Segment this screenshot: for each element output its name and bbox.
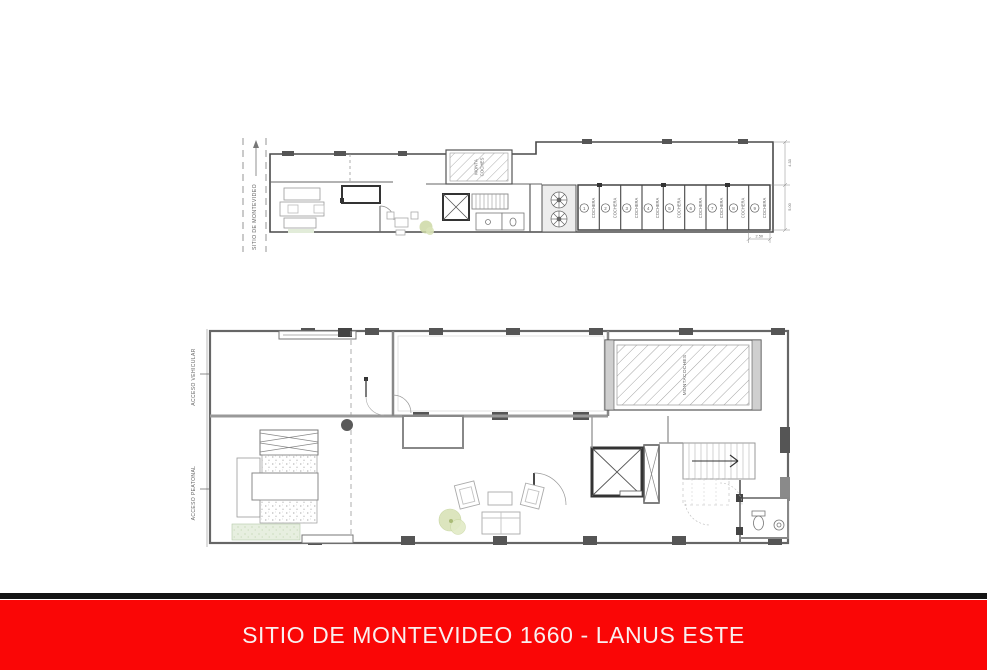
stairs <box>472 194 508 209</box>
service-shaft <box>644 445 659 503</box>
pillar <box>582 139 592 144</box>
toilet <box>510 218 516 226</box>
parking-stalls: 1 COCHERA 2 COCHERA 3 COCHERA 4 COCHERA … <box>578 183 770 230</box>
pillar <box>597 183 602 187</box>
pillar <box>334 151 346 156</box>
stall-label: COCHERA <box>591 198 596 219</box>
stall-label: COCHERA <box>698 198 703 219</box>
elevator-shaft <box>443 194 469 220</box>
street-arrow-icon <box>253 140 259 176</box>
sofa <box>482 512 520 534</box>
pedestrian-access-label: ACCESO PEATONAL <box>191 466 197 521</box>
dim-right-upper: 4.33 <box>787 159 792 167</box>
door-jamb <box>340 198 344 203</box>
stall-label: COCHERA <box>655 198 660 219</box>
coffee-table <box>488 492 512 505</box>
vestibule <box>403 416 463 448</box>
car-lift-label-2: COCHES <box>480 158 485 177</box>
textured-path <box>262 455 317 473</box>
bathroom <box>476 213 524 230</box>
car-lift-label: MONTACOCHES <box>682 355 688 396</box>
pedestrian-gate <box>302 535 353 543</box>
grass-texture <box>232 524 300 540</box>
title-banner: SITIO DE MONTEVIDEO 1660 - LANUS ESTE <box>0 600 987 670</box>
mechanical-stall <box>542 185 576 232</box>
elevator-shaft <box>592 448 642 496</box>
pillar <box>662 139 672 144</box>
pillar <box>725 183 730 187</box>
upper-floor-plan: SITIO DE MONTEVIDEO <box>230 130 810 260</box>
page-title: SITIO DE MONTEVIDEO 1660 - LANUS ESTE <box>242 622 745 649</box>
pillar <box>282 151 294 156</box>
fan-icon <box>551 211 567 227</box>
pillar <box>398 151 407 156</box>
stall-label: COCHERA <box>613 198 618 219</box>
textured-path <box>260 500 317 523</box>
stall-label: COCHERA <box>741 198 746 219</box>
stall-label: COCHERA <box>677 198 682 219</box>
lower-floor-plan: ACCESO VEHICULAR ACCESO PEATONAL <box>180 315 820 560</box>
vehicular-access-label: ACCESO VEHICULAR <box>191 348 197 406</box>
street-label: SITIO DE MONTEVIDEO <box>252 184 258 250</box>
stall-label: COCHERA <box>634 198 639 219</box>
pillar <box>738 139 748 144</box>
dim-right-lower: 5.00 <box>787 202 792 210</box>
stall-label: COCHERA <box>762 198 767 219</box>
planter-strip <box>288 229 314 233</box>
dim-bottom: 2.50 <box>756 234 764 239</box>
car-lift-shaft: MONTA COCHES <box>446 150 512 184</box>
sink <box>486 220 491 225</box>
page-background: SITIO DE MONTEVIDEO <box>0 0 987 670</box>
entry-canopy <box>252 473 318 500</box>
vehicle-gate <box>279 328 356 339</box>
pillar <box>661 183 666 187</box>
fan-icon <box>551 192 567 208</box>
sink <box>774 520 784 530</box>
banner-divider-line <box>0 593 987 599</box>
storage-room <box>342 186 380 203</box>
round-column <box>341 419 353 431</box>
stall-label: COCHERA <box>719 198 724 219</box>
plant <box>426 227 434 235</box>
car-lift-shaft: MONTACOCHES <box>605 340 761 410</box>
car-lift-label-1: MONTA <box>474 159 479 175</box>
